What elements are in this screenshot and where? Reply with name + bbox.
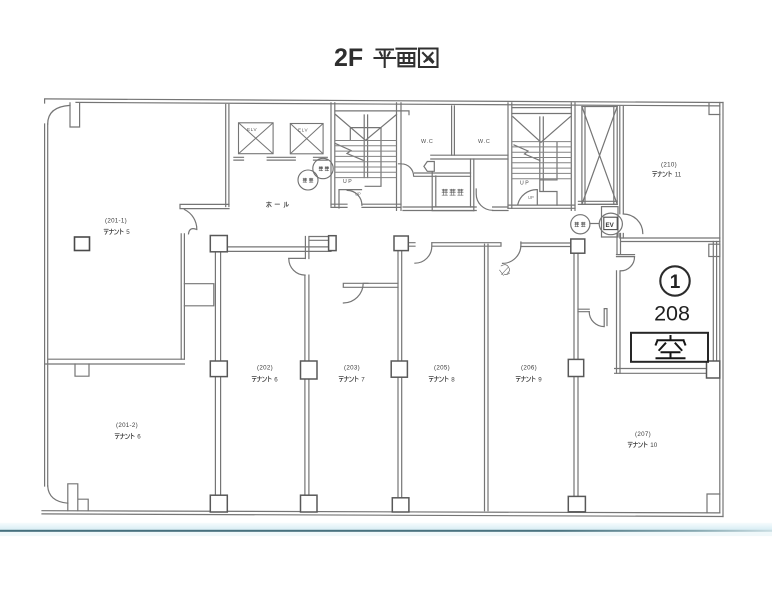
svg-text:1: 1 [670, 272, 681, 293]
svg-text:(203): (203) [344, 365, 360, 372]
svg-text:W.C: W.C [478, 139, 491, 145]
svg-text:ELV: ELV [298, 128, 308, 133]
svg-text:8: 8 [451, 376, 455, 383]
svg-text:(205): (205) [434, 365, 450, 372]
svg-text:(206): (206) [521, 365, 537, 372]
svg-text:2F: 2F [334, 44, 363, 72]
svg-text:W.C: W.C [421, 139, 434, 145]
svg-text:(202): (202) [257, 365, 273, 372]
svg-text:ELV: ELV [247, 127, 257, 132]
svg-text:U P: U P [343, 179, 352, 185]
svg-text:9: 9 [538, 376, 542, 383]
svg-text:5: 5 [126, 229, 130, 236]
svg-text:(201-1): (201-1) [105, 218, 127, 225]
svg-text:EV: EV [606, 222, 615, 229]
svg-text:(207): (207) [635, 431, 651, 438]
svg-text:7: 7 [361, 376, 365, 383]
svg-text:UP: UP [528, 195, 534, 200]
svg-text:11: 11 [675, 171, 682, 178]
svg-text:(210): (210) [661, 162, 677, 169]
svg-text:6: 6 [274, 376, 278, 383]
svg-text:UP: UP [355, 192, 361, 197]
svg-text:(201-2): (201-2) [116, 422, 138, 429]
svg-text:10: 10 [650, 442, 657, 449]
svg-text:U P: U P [520, 181, 529, 187]
svg-text:208: 208 [654, 302, 690, 326]
svg-text:6: 6 [137, 434, 141, 441]
